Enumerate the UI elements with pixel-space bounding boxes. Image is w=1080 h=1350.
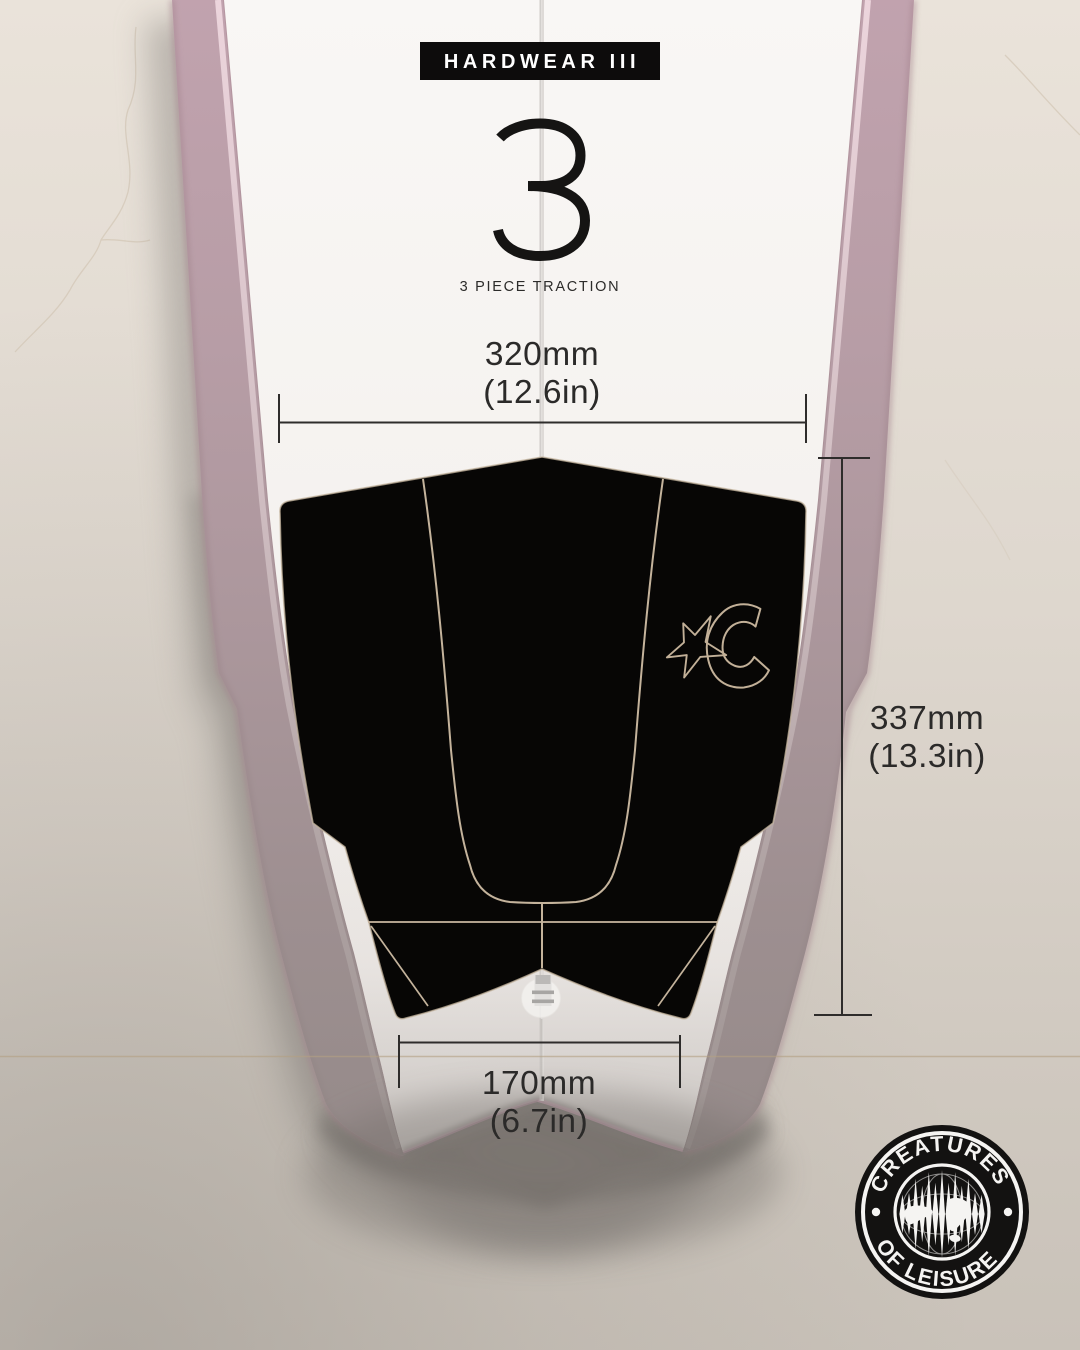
svg-text:320mm: 320mm (485, 336, 599, 373)
svg-text:170mm: 170mm (482, 1065, 596, 1102)
svg-text:(6.7in): (6.7in) (490, 1103, 588, 1140)
svg-text:337mm: 337mm (870, 700, 984, 737)
svg-text:3 PIECE TRACTION: 3 PIECE TRACTION (460, 279, 621, 295)
svg-text:(13.3in): (13.3in) (868, 738, 986, 775)
svg-text:(12.6in): (12.6in) (483, 374, 601, 411)
svg-text:HARDWEAR III: HARDWEAR III (444, 51, 640, 73)
